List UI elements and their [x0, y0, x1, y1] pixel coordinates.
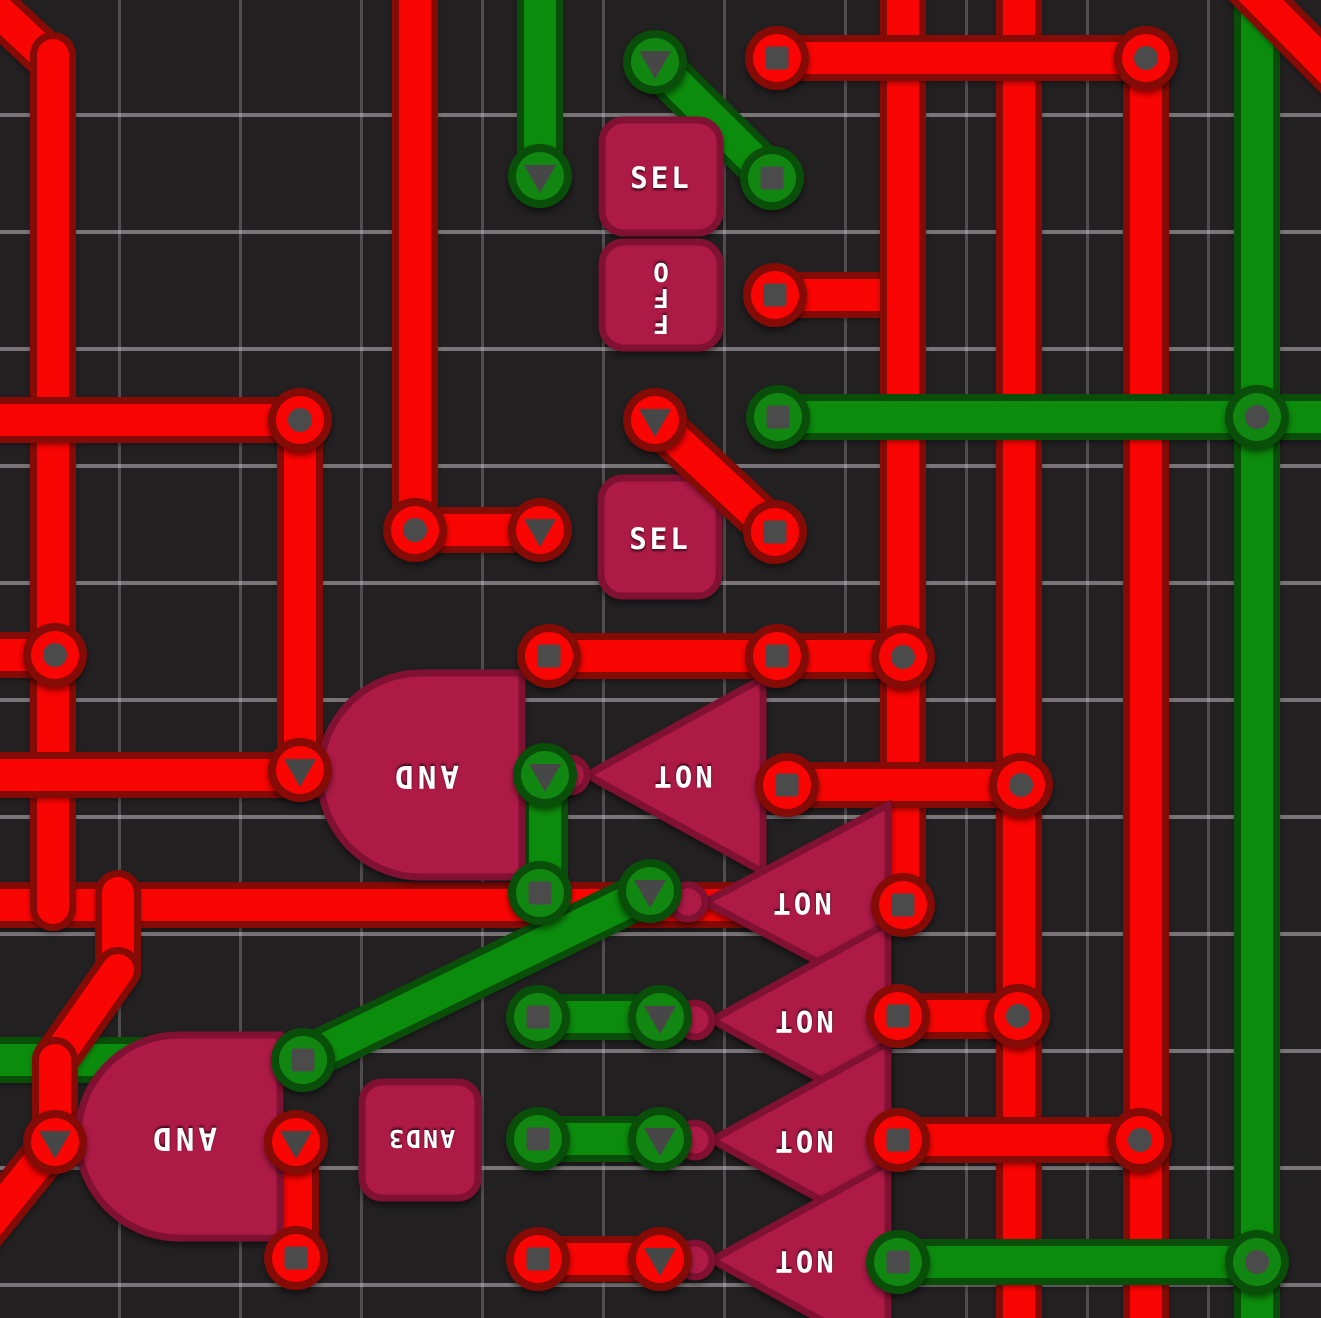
via-junction-red[interactable]: [1108, 1108, 1172, 1172]
via-pin-square-red[interactable]: [745, 26, 809, 90]
via-pin-square-green[interactable]: [506, 1107, 570, 1171]
sel-component-2[interactable]: SEL: [601, 478, 719, 596]
via-junction-green[interactable]: [1225, 385, 1289, 449]
via-pin-arrow-green[interactable]: [623, 30, 687, 94]
via-pin-square-green[interactable]: [740, 146, 804, 210]
via-pin-square-red[interactable]: [506, 1227, 570, 1291]
off-component[interactable]: O F F: [602, 242, 720, 348]
and2-label: AND: [149, 1120, 217, 1156]
not-gate-5[interactable]: NOT: [678, 1163, 888, 1318]
via-pin-square-red[interactable]: [866, 984, 930, 1048]
via-pin-square-green[interactable]: [506, 985, 570, 1049]
via-pin-arrow-red[interactable]: [508, 498, 572, 562]
via-pin-square-red[interactable]: [745, 624, 809, 688]
via-pin-square-green[interactable]: [271, 1028, 335, 1092]
via-junction-red[interactable]: [986, 984, 1050, 1048]
via-pin-square-green[interactable]: [746, 385, 810, 449]
via-junction-green[interactable]: [1225, 1230, 1289, 1294]
off-letter-1: O: [653, 256, 669, 286]
via-pin-arrow-red[interactable]: [268, 738, 332, 802]
not5-label: NOT: [772, 1244, 833, 1278]
via-junction-red[interactable]: [268, 388, 332, 452]
via-pin-arrow-green[interactable]: [508, 144, 572, 208]
via-pin-arrow-red[interactable]: [23, 1110, 87, 1174]
via-pin-arrow-green[interactable]: [628, 985, 692, 1049]
sel1-label: SEL: [630, 161, 691, 195]
via-pin-square-red[interactable]: [755, 753, 819, 817]
via-junction-red[interactable]: [989, 753, 1053, 817]
via-pin-square-red[interactable]: [866, 1108, 930, 1172]
circuit-board-canvas[interactable]: SEL O F F SEL AND NOT NOT NOT NOT NOT: [0, 0, 1321, 1318]
not1-label: NOT: [651, 759, 712, 793]
via-pin-square-red[interactable]: [517, 624, 581, 688]
board-overlay: SEL O F F SEL AND NOT NOT NOT NOT NOT: [0, 0, 1321, 1318]
sel2-label: SEL: [629, 522, 690, 556]
and3-label: AND3: [387, 1124, 455, 1153]
via-pin-arrow-green[interactable]: [513, 743, 577, 807]
via-junction-red[interactable]: [1114, 26, 1178, 90]
and3-component[interactable]: AND3: [362, 1082, 478, 1198]
via-pin-square-red[interactable]: [871, 873, 935, 937]
not4-label: NOT: [772, 1124, 833, 1158]
via-junction-red[interactable]: [383, 498, 447, 562]
via-pin-arrow-green[interactable]: [628, 1107, 692, 1171]
via-pin-arrow-red[interactable]: [628, 1227, 692, 1291]
via-pin-square-red[interactable]: [264, 1226, 328, 1290]
sel-component-1[interactable]: SEL: [602, 120, 720, 233]
via-pin-square-green[interactable]: [508, 861, 572, 925]
via-junction-red[interactable]: [871, 625, 935, 689]
via-pin-arrow-green[interactable]: [618, 859, 682, 923]
off-letter-3: F: [653, 308, 669, 338]
via-pin-arrow-red[interactable]: [264, 1110, 328, 1174]
and-gate-1[interactable]: AND: [320, 673, 522, 877]
and1-label: AND: [391, 758, 459, 794]
not2-label: NOT: [770, 886, 831, 920]
via-pin-square-red[interactable]: [743, 500, 807, 564]
via-pin-square-green[interactable]: [866, 1230, 930, 1294]
via-pin-square-red[interactable]: [743, 263, 807, 327]
off-letter-2: F: [653, 282, 669, 312]
via-junction-red[interactable]: [23, 623, 87, 687]
via-pin-arrow-red[interactable]: [623, 388, 687, 452]
not-gate-1[interactable]: NOT: [553, 678, 763, 872]
not3-label: NOT: [772, 1004, 833, 1038]
and-gate-2[interactable]: AND: [78, 1035, 280, 1238]
